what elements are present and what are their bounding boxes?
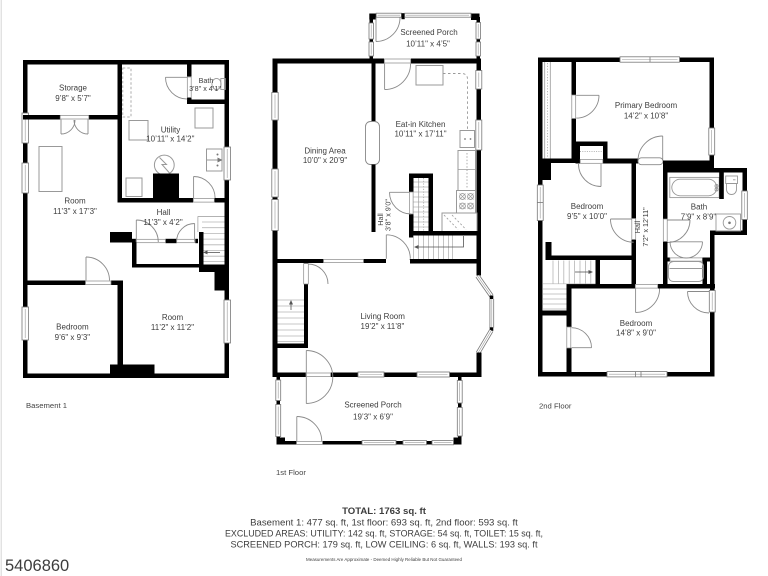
svg-text:10’11" x 14’2": 10’11" x 14’2" [146,135,194,144]
svg-text:Storage: Storage [59,84,88,93]
svg-text:7’9" x 8’9": 7’9" x 8’9" [681,213,717,222]
svg-text:Bath: Bath [691,203,707,212]
svg-text:Basement 1: 477 sq. ft, 1st fl: Basement 1: 477 sq. ft, 1st floor: 693 s… [250,518,518,529]
svg-text:Bedroom: Bedroom [56,323,89,332]
svg-text:Eat-in Kitchen: Eat-in Kitchen [396,120,446,129]
svg-text:2nd Floor: 2nd Floor [539,402,572,411]
svg-text:10’0" x 20’9": 10’0" x 20’9" [303,156,348,165]
svg-text:SCREENED PORCH: 179 sq. ft, LO: SCREENED PORCH: 179 sq. ft, LOW CEILING:… [231,540,538,551]
svg-text:14’2" x 10’8": 14’2" x 10’8" [624,112,669,121]
svg-text:9’8" x 5’7": 9’8" x 5’7" [55,94,91,103]
svg-text:5406860: 5406860 [5,557,69,575]
svg-text:Primary Bedroom: Primary Bedroom [615,101,678,110]
svg-text:14’8" x 9’0": 14’8" x 9’0" [616,329,656,338]
svg-text:11’3" x 17’3": 11’3" x 17’3" [53,207,97,216]
svg-text:TOTAL: 1763 sq. ft: TOTAL: 1763 sq. ft [342,506,427,517]
svg-text:10’11" x 4’5": 10’11" x 4’5" [406,40,450,49]
svg-text:11’3" x 4’2": 11’3" x 4’2" [143,218,182,227]
svg-text:Dining Area: Dining Area [304,147,346,156]
svg-text:Room: Room [64,197,86,206]
svg-text:9’6" x 9’3": 9’6" x 9’3" [55,333,91,342]
svg-text:Measurements Are Approximate -: Measurements Are Approximate - Deemed Hi… [306,557,463,562]
svg-text:Room: Room [162,313,184,322]
svg-text:Hall: Hall [157,208,171,217]
svg-text:3’8" x 9’0": 3’8" x 9’0" [384,199,393,231]
svg-text:1st Floor: 1st Floor [276,468,306,477]
svg-text:Living Room: Living Room [360,312,405,321]
svg-text:19’2" x 11’8": 19’2" x 11’8" [361,322,405,331]
svg-text:EXCLUDED AREAS: UTILITY: 142 s: EXCLUDED AREAS: UTILITY: 142 sq. ft, STO… [225,529,543,540]
svg-text:Bedroom: Bedroom [620,319,653,328]
svg-text:11’2" x 11’2": 11’2" x 11’2" [151,323,194,332]
svg-text:Basement 1: Basement 1 [26,401,67,410]
svg-text:Bedroom: Bedroom [571,202,604,211]
svg-text:7’2" x 12’11": 7’2" x 12’11" [641,207,650,247]
svg-text:Screened Porch: Screened Porch [400,28,457,37]
svg-text:10’11" x 17’11": 10’11" x 17’11" [394,130,446,139]
svg-text:Utility: Utility [161,126,181,135]
svg-text:9’5" x 10’0": 9’5" x 10’0" [567,212,607,221]
svg-text:3’8" x 4’1": 3’8" x 4’1" [189,84,221,93]
svg-text:19’3" x 6’9": 19’3" x 6’9" [353,413,393,422]
svg-text:Screened Porch: Screened Porch [344,401,401,410]
